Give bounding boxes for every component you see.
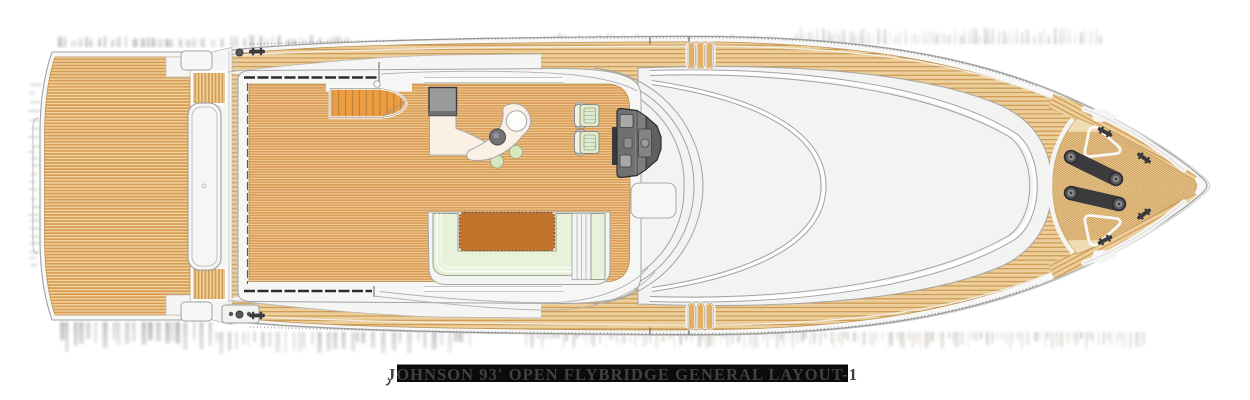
svg-text:JOHNSON 93' OPEN FLYBRIDGE GEN: JOHNSON 93' OPEN FLYBRIDGE GENERAL LAYOU… <box>387 365 858 384</box>
